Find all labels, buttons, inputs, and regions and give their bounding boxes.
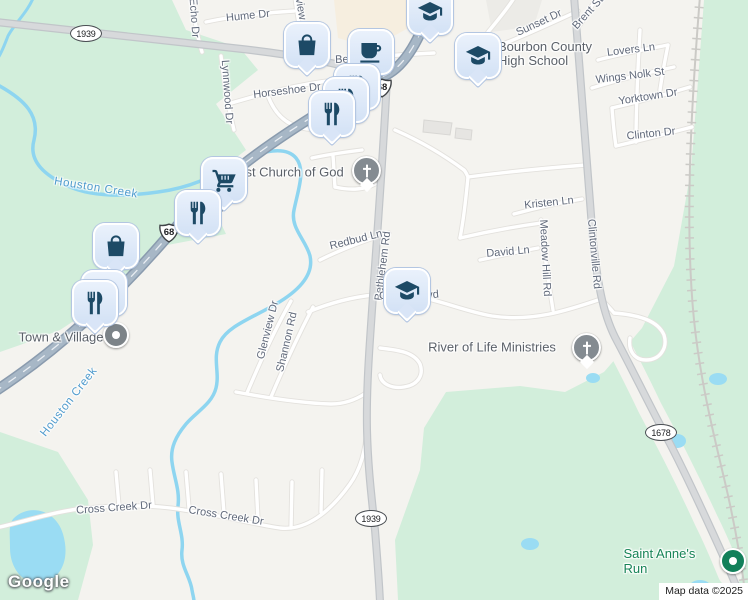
coffee-cup-icon xyxy=(358,39,385,66)
poi-marker-graduation-cap[interactable] xyxy=(407,0,453,35)
route-shield-1939: 1939 xyxy=(70,25,102,42)
poi-marker-shopping-bag[interactable] xyxy=(93,223,139,269)
church-cross-icon xyxy=(578,339,595,356)
map-attribution[interactable]: Map data ©2025 xyxy=(659,583,748,600)
route-shield-1678: 1678 xyxy=(645,424,677,441)
restaurant-icon xyxy=(185,200,212,227)
poi-marker-restaurant[interactable] xyxy=(72,280,118,326)
shopping-cart-icon xyxy=(211,167,238,194)
shopping-bag-icon xyxy=(294,32,321,59)
graduation-cap-icon xyxy=(465,43,492,70)
church-cross-icon xyxy=(358,162,375,179)
map-canvas[interactable]: Hume DrEcho DrSkyviewLynnwood DrHorsesho… xyxy=(0,0,748,600)
poi-marker-shopping-bag[interactable] xyxy=(284,22,330,68)
restaurant-icon xyxy=(319,101,346,128)
church-poi-dot[interactable] xyxy=(352,156,381,185)
route-shield-1939: 1939 xyxy=(355,510,387,527)
pond xyxy=(709,373,727,385)
graduation-cap-icon xyxy=(394,278,421,305)
building xyxy=(455,128,472,140)
poi-label[interactable]: Town & Village xyxy=(18,330,103,345)
park-poi-dot[interactable] xyxy=(720,548,746,574)
poi-marker-graduation-cap[interactable] xyxy=(384,268,430,314)
church-poi-dot[interactable] xyxy=(572,333,601,362)
poi-label[interactable]: Bourbon County High School xyxy=(498,40,592,68)
restaurant-icon xyxy=(82,290,109,317)
poi-marker-graduation-cap[interactable] xyxy=(455,33,501,79)
street-label: Echo Dr xyxy=(187,0,202,38)
pond xyxy=(521,538,539,550)
poi-marker-restaurant[interactable] xyxy=(309,91,355,137)
pond xyxy=(586,373,600,383)
graduation-cap-icon xyxy=(417,0,444,26)
shopping-bag-icon xyxy=(103,233,130,260)
poi-marker-restaurant[interactable] xyxy=(175,190,221,236)
building xyxy=(423,120,452,135)
poi-label[interactable]: River of Life Ministries xyxy=(428,340,556,355)
google-logo[interactable]: Google xyxy=(8,572,70,592)
poi-label[interactable]: First Church of God xyxy=(230,165,343,180)
poi-label[interactable]: Saint Anne's Run xyxy=(624,546,707,576)
